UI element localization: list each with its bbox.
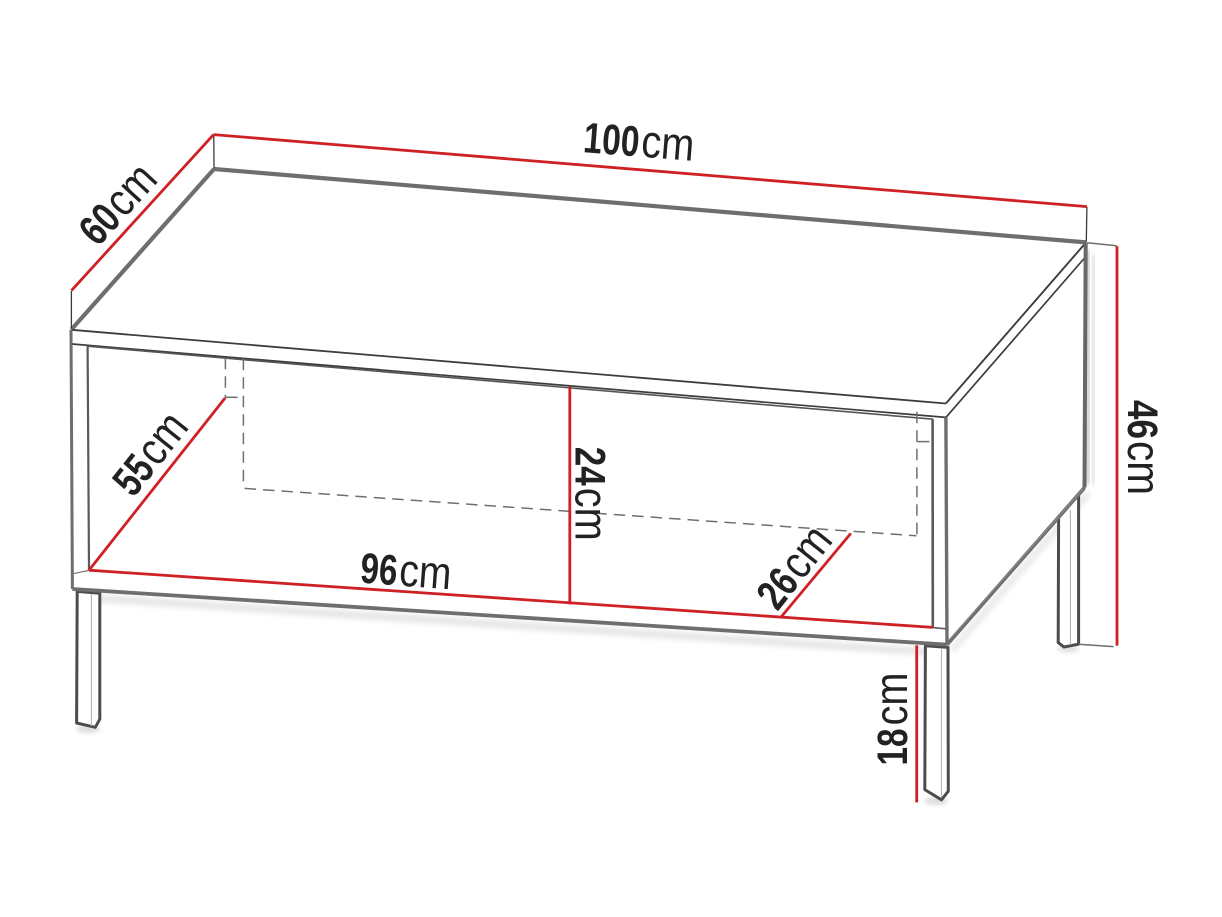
- svg-text:24: 24: [566, 447, 614, 486]
- svg-text:cm: cm: [640, 115, 697, 171]
- svg-text:18: 18: [869, 729, 917, 766]
- svg-text:cm: cm: [865, 673, 917, 726]
- svg-text:46: 46: [1118, 400, 1166, 439]
- svg-text:cm: cm: [398, 544, 454, 600]
- svg-text:96: 96: [359, 545, 399, 596]
- svg-text:cm: cm: [1118, 441, 1170, 495]
- svg-text:cm: cm: [566, 488, 618, 541]
- svg-text:100: 100: [582, 114, 642, 166]
